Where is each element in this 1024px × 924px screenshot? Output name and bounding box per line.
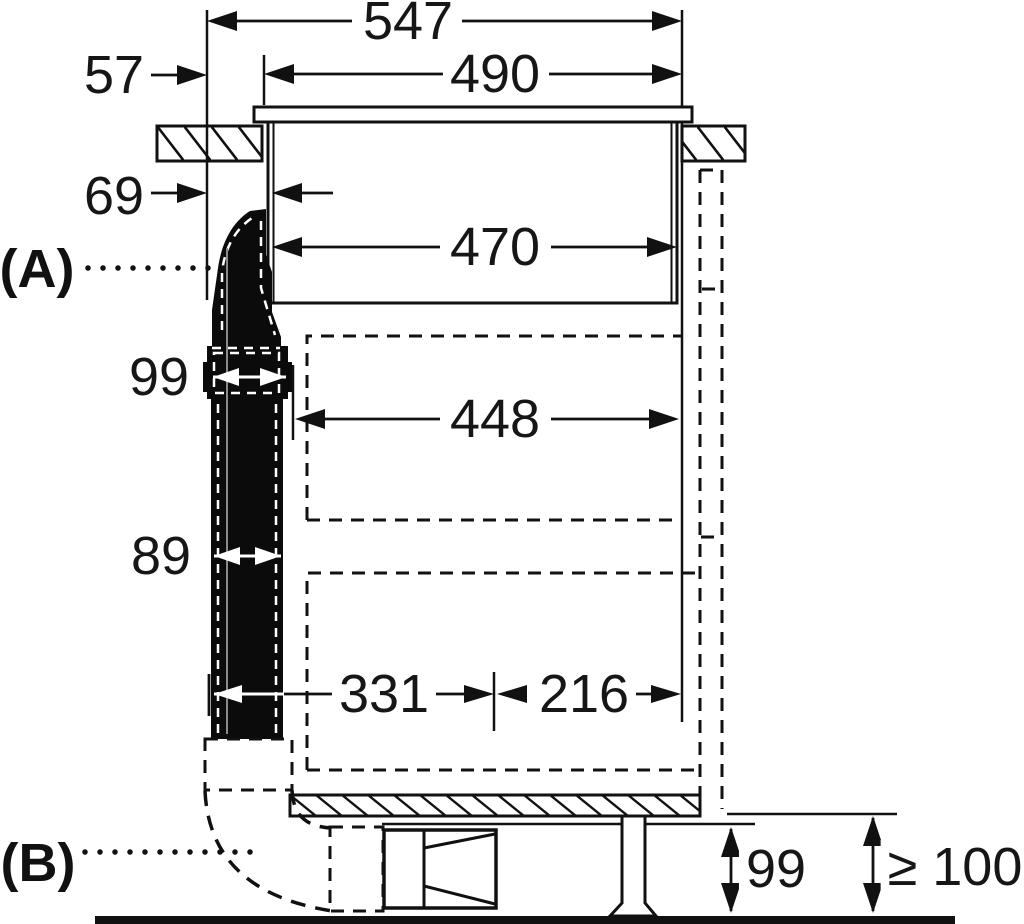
- diagram-canvas: [0, 0, 1024, 924]
- section-a-label: (A): [0, 242, 74, 296]
- dim-cutout-width-label: 490: [443, 47, 547, 101]
- dim-duct-depth-label: 89: [124, 529, 198, 583]
- dim-body-inset-label: 69: [77, 169, 151, 223]
- dim-inner-clearance-label: 448: [443, 392, 547, 446]
- floor-line: [95, 916, 955, 924]
- dim-body-width-label: 470: [443, 220, 547, 274]
- dim-floor-clearance-label: ≥ 100: [881, 840, 1024, 894]
- dim-left-offset-label: 57: [77, 48, 151, 102]
- dim-axis-to-side-label: 216: [532, 667, 636, 721]
- cabinet-base: [95, 795, 955, 924]
- duct-elbow-dashed: [205, 739, 383, 911]
- fan-unit: [384, 830, 496, 908]
- cabinet-leg: [610, 816, 656, 916]
- dim-total-width-label: 547: [356, 0, 460, 48]
- dim-flange-width-label: 99: [122, 350, 196, 404]
- dim-plinth-height-label: 99: [739, 842, 813, 896]
- section-b-label: (B): [1, 836, 76, 890]
- dim-duct-to-axis-label: 331: [332, 667, 436, 721]
- installation-diagram: 547 490 57 69 470 448 99 89 331 216 99 ≥…: [0, 0, 1024, 924]
- rear-duct-dashed: [700, 170, 722, 809]
